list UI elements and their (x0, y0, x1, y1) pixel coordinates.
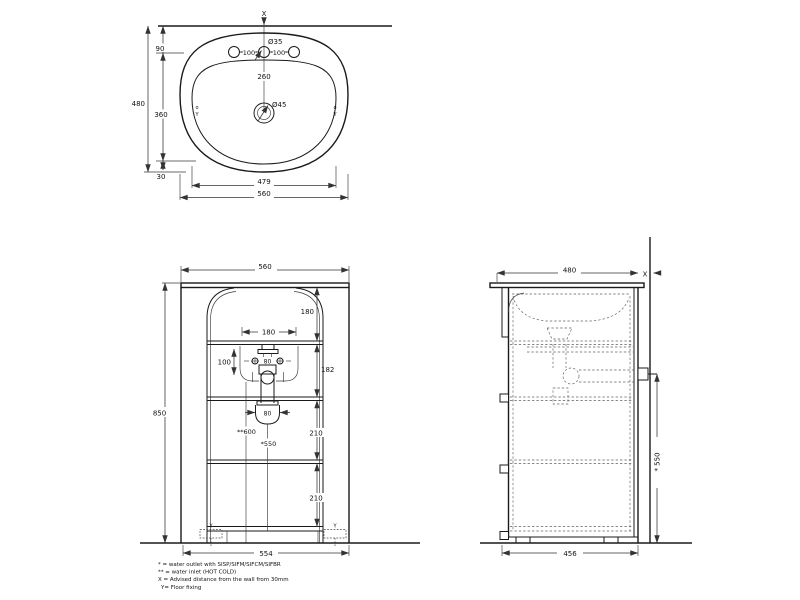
svg-text:360: 360 (154, 111, 167, 119)
base-depth-dim: 456 (502, 545, 638, 558)
legend-line-1: * = water outlet with SISP/SIFM/SIFCM/SI… (158, 562, 281, 568)
svg-text:850: 850 (153, 410, 166, 418)
svg-text:* 550: * 550 (654, 452, 662, 471)
counter-top-side (490, 283, 644, 288)
front-view: 560 (140, 263, 420, 559)
water-outlet-height-label: *550 (261, 440, 277, 448)
side-depth-dim: 480 X (497, 266, 661, 283)
washbasin-technical-drawing: X Ø35 100 100 260 Ø45 (0, 0, 800, 600)
depth-dimensions: 480 90 360 30 (132, 26, 196, 181)
front-top-width-dim: 560 (181, 263, 349, 283)
water-inlet-height-label: **600 (237, 428, 256, 436)
svg-text:Y: Y (332, 112, 337, 118)
svg-text:210: 210 (309, 495, 322, 503)
svg-text:90: 90 (156, 45, 165, 53)
svg-text:Y: Y (194, 112, 199, 118)
svg-text:180: 180 (301, 308, 314, 316)
top-view: X Ø35 100 100 260 Ø45 (132, 10, 392, 200)
connection-height-labels: **600 *550 (235, 382, 279, 543)
svg-text:480: 480 (563, 267, 576, 275)
svg-text:210: 210 (309, 430, 322, 438)
svg-text:180: 180 (262, 329, 275, 337)
foot-front (516, 537, 530, 543)
svg-text:554: 554 (259, 550, 273, 558)
svg-text:100: 100 (218, 359, 231, 367)
width-dimensions: 479 560 (180, 166, 348, 200)
hidden-plumbing (510, 294, 634, 531)
trap-width-dim: 80 (245, 409, 290, 418)
svg-text:o: o (195, 105, 198, 111)
svg-text:560: 560 (257, 190, 270, 198)
fixing-mark-right: o Y (332, 105, 337, 118)
svg-text:480: 480 (132, 100, 145, 108)
front-wall-tabs (500, 394, 509, 540)
foot-rear (604, 537, 618, 543)
side-view: 480 X (480, 237, 692, 558)
base-width-dim: 554 (183, 545, 349, 558)
fixing-height-dim: * 550 (652, 374, 662, 543)
drain-diameter-label: Ø45 (272, 101, 286, 109)
basin-front-lip (502, 288, 509, 338)
front-right-dim-chain: 180 182 210 210 (301, 288, 335, 527)
legend-line-2: ** = water inlet (HOT COLD) (158, 570, 236, 576)
svg-text:o: o (333, 105, 336, 111)
counter-top (181, 283, 349, 288)
fixing-mark-left: o Y (194, 105, 199, 118)
svg-text:80: 80 (264, 410, 272, 417)
svg-text:Y: Y (332, 524, 337, 530)
svg-text:479: 479 (257, 178, 270, 186)
technical-drawing-page: X Ø35 100 100 260 Ø45 (0, 0, 800, 600)
svg-text:30: 30 (157, 173, 166, 181)
tap-hole-diameter-label: Ø35 (268, 38, 282, 46)
inlet-drop-dim: 100 (218, 349, 234, 375)
svg-text:100: 100 (243, 49, 255, 57)
wall-distance-mark: X (262, 10, 267, 18)
svg-text:560: 560 (258, 263, 271, 271)
legend: * = water outlet with SISP/SIFM/SIFCM/SI… (158, 562, 289, 591)
bracket-pitch-dim: 180 (242, 327, 296, 337)
wall-distance-mark-side: X (643, 271, 648, 279)
drain-offset-label: 260 (257, 73, 270, 81)
inlet-pitch-label: 80 (264, 358, 272, 365)
wall-bracket (638, 368, 657, 380)
legend-line-3: X = Advised distance from the wall from … (158, 577, 289, 583)
svg-text:182: 182 (321, 366, 334, 374)
legend-line-4: Y= Floor fixing (160, 585, 201, 591)
trap-body (261, 371, 274, 384)
svg-text:456: 456 (563, 550, 577, 558)
overall-height-dim: 850 (149, 283, 181, 543)
svg-text:100: 100 (273, 49, 285, 57)
